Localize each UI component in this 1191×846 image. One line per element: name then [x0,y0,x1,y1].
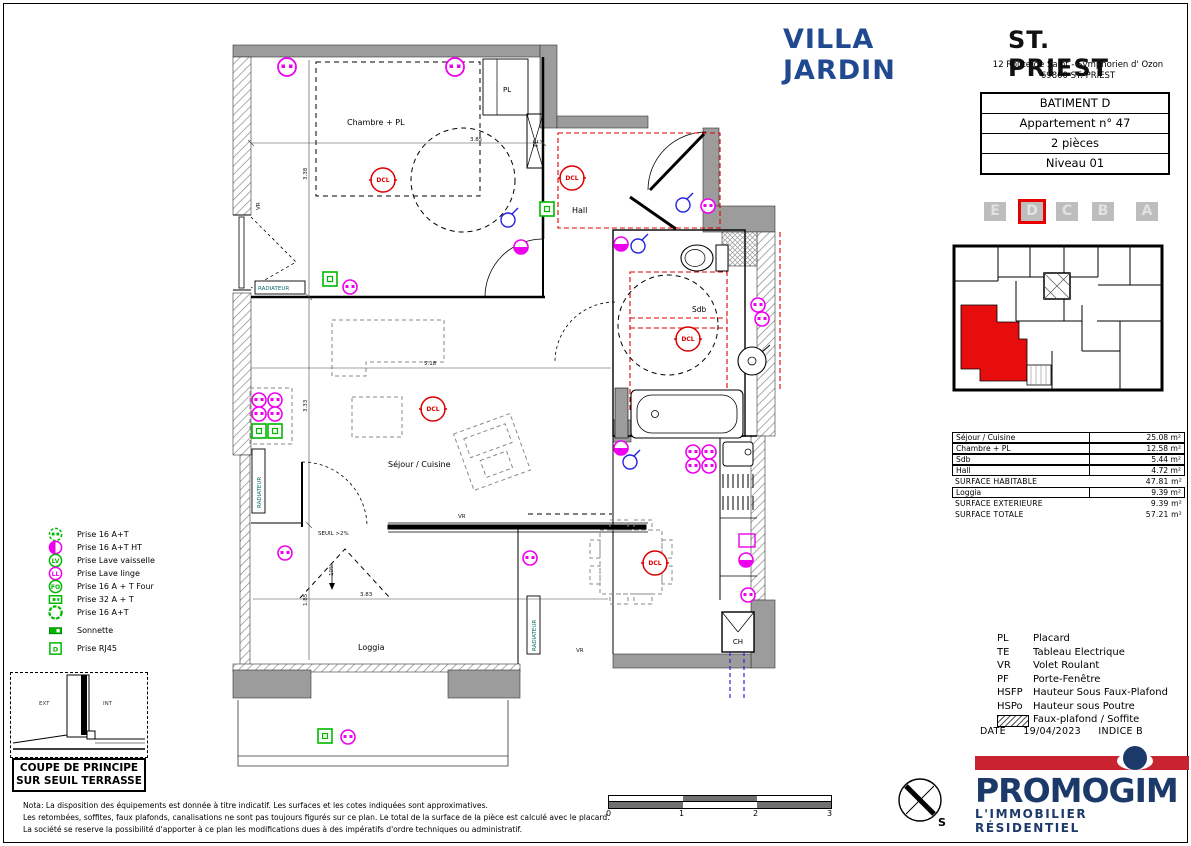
apartment-info-box: BATIMENT D Appartement n° 47 2 pièces Ni… [980,92,1170,175]
scale-bar: 0 1 2 3 [608,795,830,817]
svg-text:D: D [53,645,59,653]
svg-text:3.85: 3.85 [470,137,483,143]
compass-south-label: S [938,816,946,829]
dashed-zones-layer [300,62,718,598]
svg-text:1.85: 1.85 [303,593,309,606]
vr-label: VR [458,514,466,520]
table-row: Chambre + PL12.58 m² [952,443,1185,454]
floor-plan: CH RADIATEUR RADIATEUR RADIATEUR PL TE [225,40,785,775]
logo-red-band [975,756,1189,770]
table-row: Sdb5.44 m² [952,454,1185,465]
date-label: DATE [980,726,1006,737]
svg-text:DCL: DCL [376,177,389,184]
indice-value: INDICE B [1098,726,1143,737]
socket-rj45-icon: D [48,641,63,656]
level-label: Niveau 01 [982,154,1168,173]
table-row: Séjour / Cuisine25.08 m² [952,432,1185,443]
table-row-total: SURFACE HABITABLE47.81 m² [952,476,1185,487]
ramp-label: 10% [329,564,335,576]
vr-label: VR [256,202,262,210]
dimensions-layer [248,60,611,660]
promogim-logo: PROMOGIM L'IMMOBILIER RÉSIDENTIEL [975,750,1189,830]
svg-text:LV: LV [52,558,60,565]
note-line: Les retombées, soffites, faux plafonds, … [23,812,583,824]
svg-text:DCL: DCL [648,560,661,567]
section-int-label: INT [103,701,113,707]
table-row-total: SURFACE TOTALE57.21 m² [952,509,1185,520]
radiator-label: RADIATEUR [257,477,263,508]
svg-text:DCL: DCL [565,175,578,182]
micro-labels-layer: SEUIL >2% VR VR VR 10% [256,202,584,654]
address: 12 Route de Saint - Symphorien d' Ozon 6… [988,60,1168,82]
room-label-chambre: Chambre + PL [347,118,405,127]
room-label-hall: Hall [572,206,587,215]
compass-icon: S [896,776,948,830]
radiator-label: RADIATEUR [532,620,538,651]
svg-text:3.83: 3.83 [360,592,373,598]
dcl-points-layer: DCL DCL DCL DCL DCL [369,166,702,575]
date-value: 19/04/2023 [1023,726,1081,737]
address-line2: 69800 ST. PRIEST [988,71,1168,82]
table-row-total: SURFACE EXTERIEURE9.39 m² [952,498,1185,509]
tab-building-b[interactable]: B [1092,202,1114,221]
electrical-panel-label: TE [532,139,540,149]
rooms-label: 2 pièces [982,134,1168,154]
closet-te-layer [483,59,543,168]
radiator-label: RADIATEUR [258,286,289,292]
electrical-legend: Prise 16 A+T Prise 16 A+T HT LVPrise Lav… [20,528,210,655]
section-title: COUPE DE PRINCIPE SUR SEUIL TERRASSE [12,758,146,792]
boiler-label: CH [733,638,743,646]
room-label-loggia: Loggia [358,643,385,652]
svg-text:DCL: DCL [681,336,694,343]
tab-building-a[interactable]: A [1136,202,1158,221]
socket-16at-b-icon [48,605,63,620]
surface-table: Séjour / Cuisine25.08 m² Chambre + PL12.… [952,432,1185,520]
project-title: VILLA JARDIN [783,24,978,86]
apartment-label: Appartement n° 47 [982,114,1168,134]
building-key-plan [952,241,1165,394]
terrace-layer [238,700,508,766]
plan-notes: Nota: La disposition des équipements est… [23,800,583,836]
threshold-label: SEUIL >2% [318,531,349,537]
room-label-sdb: Sdb [692,305,707,314]
closet-label: PL [503,86,511,94]
building-label: BATIMENT D [982,94,1168,114]
address-line1: 12 Route de Saint - Symphorien d' Ozon [988,60,1168,71]
logo-tagline: L'IMMOBILIER RÉSIDENTIEL [975,807,1189,835]
svg-text:3.33: 3.33 [303,399,309,412]
svg-text:LL: LL [52,571,60,578]
section-drawing: EXT INT [10,672,148,758]
doorbell-icon [48,623,63,638]
threshold-section-detail: EXT INT COUPE DE PRINCIPE SUR SEUIL TERR… [10,672,148,790]
svg-text:FO: FO [51,584,60,591]
note-line: Nota: La disposition des équipements est… [23,800,583,812]
tab-building-c[interactable]: C [1056,202,1078,221]
svg-text:DCL: DCL [426,406,439,413]
tab-building-d[interactable]: D [1018,199,1046,224]
abbreviations-legend: PLPlacard TETableau Electrique VRVolet R… [997,632,1177,727]
logo-name: PROMOGIM [975,771,1189,810]
date-row: DATE 19/04/2023 INDICE B [980,726,1180,737]
vr-label: VR [576,648,584,654]
note-line: La société se reserve la possibilité d'a… [23,824,583,836]
svg-text:3.38: 3.38 [303,167,309,180]
svg-text:5.18: 5.18 [424,361,437,367]
logo-ball-icon [1123,746,1147,770]
section-ext-label: EXT [39,701,50,707]
doors-layer [251,132,706,527]
table-row: Loggia9.39 m² [952,487,1185,498]
table-row: Hall4.72 m² [952,465,1185,476]
furniture-layer [250,320,672,604]
room-label-sejour: Séjour / Cuisine [388,459,451,469]
partitions-layer [233,57,757,664]
tab-building-e[interactable]: E [984,202,1006,221]
